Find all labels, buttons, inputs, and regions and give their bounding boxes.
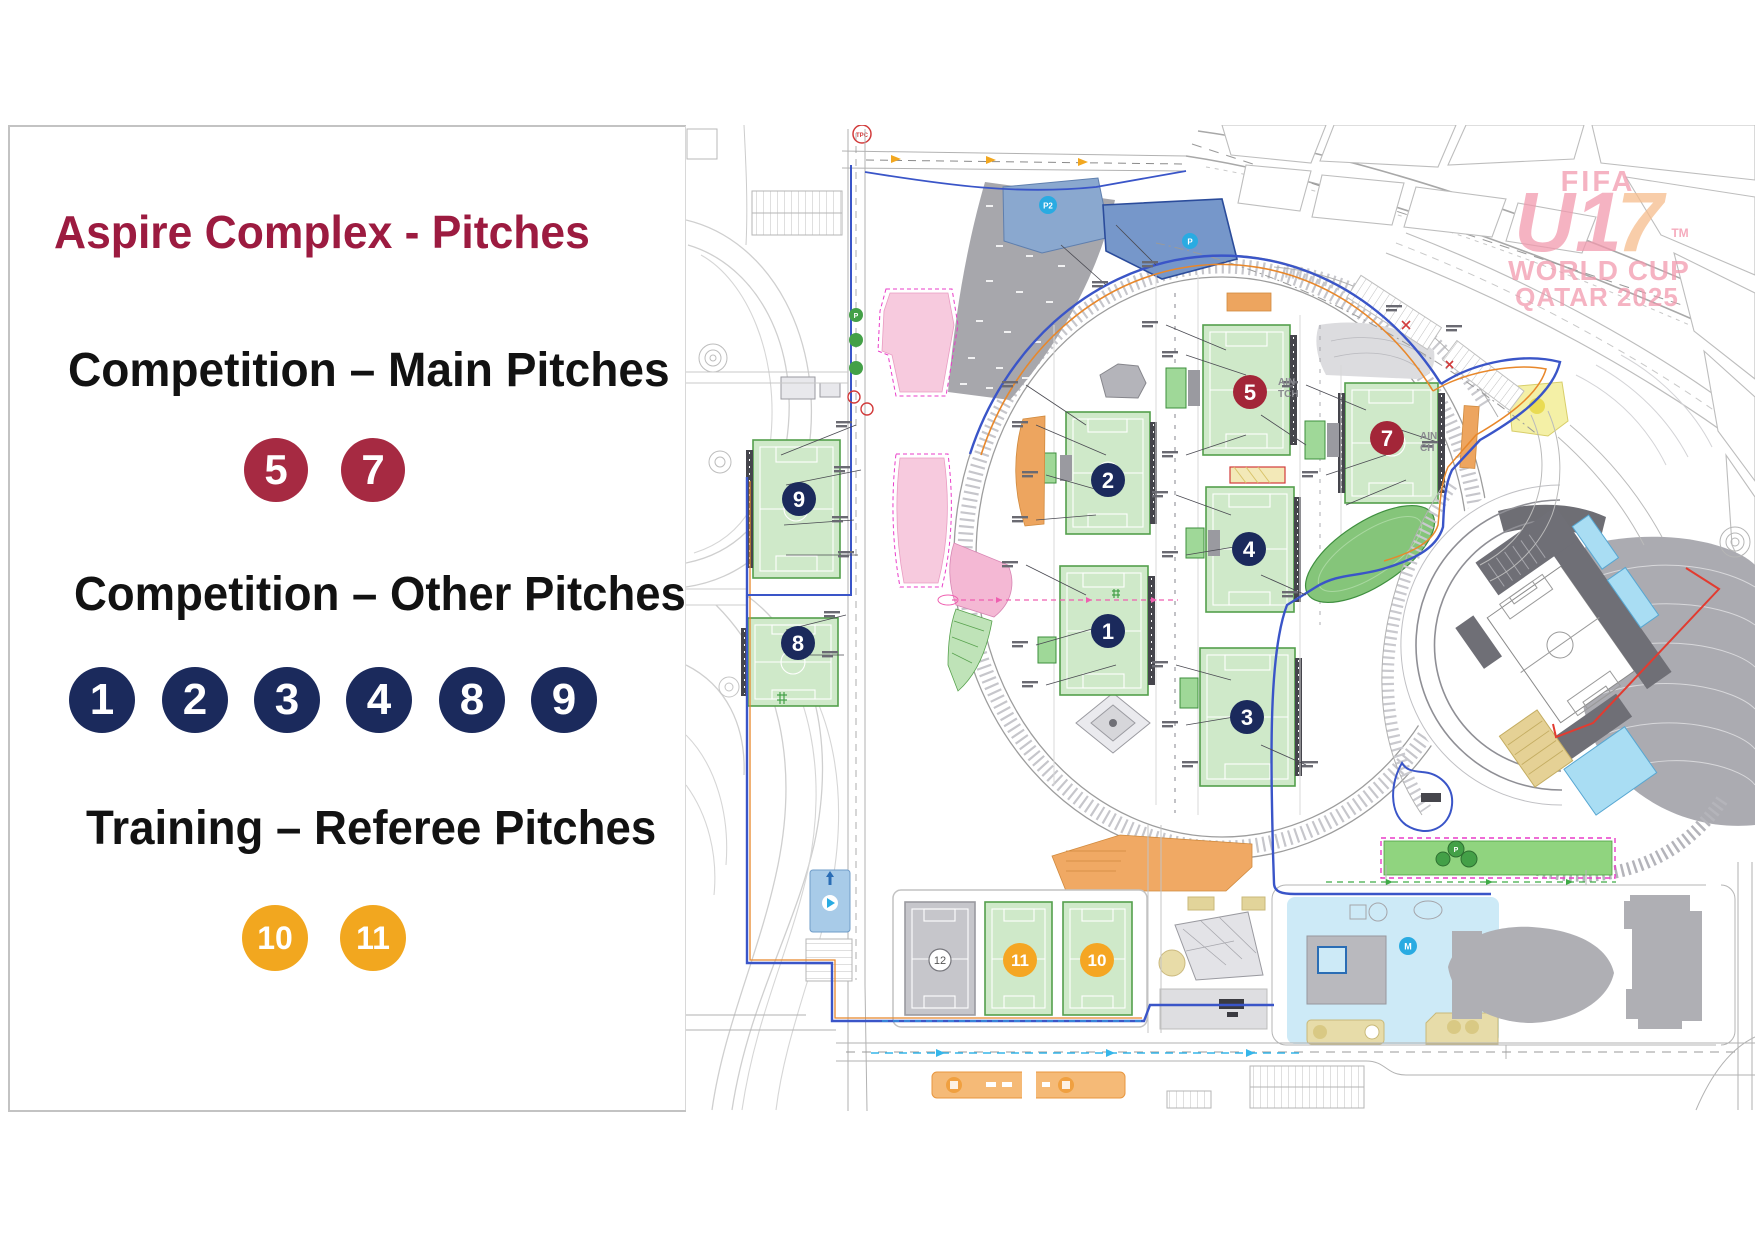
svg-text:2: 2 xyxy=(1102,468,1114,493)
svg-text:8: 8 xyxy=(792,631,804,656)
svg-text:7: 7 xyxy=(1381,426,1393,451)
svg-text:3: 3 xyxy=(1241,705,1253,730)
svg-text:TCH: TCH xyxy=(1278,389,1299,400)
svg-text:TPC: TPC xyxy=(856,133,869,139)
svg-text:AIN: AIN xyxy=(1420,431,1437,442)
svg-text:4: 4 xyxy=(1243,537,1256,562)
svg-text:TM: TM xyxy=(1671,226,1688,240)
svg-text:P2: P2 xyxy=(1043,202,1053,211)
svg-text:CH: CH xyxy=(1420,443,1434,454)
svg-text:QATAR 2025: QATAR 2025 xyxy=(1515,282,1679,312)
svg-text:P: P xyxy=(1454,847,1459,854)
svg-text:12: 12 xyxy=(934,955,946,967)
svg-text:5: 5 xyxy=(1244,380,1256,405)
svg-text:AIN: AIN xyxy=(1278,377,1295,388)
svg-text:1: 1 xyxy=(1102,619,1114,644)
svg-text:P: P xyxy=(1187,238,1193,247)
svg-text:P: P xyxy=(854,313,859,320)
svg-text:9: 9 xyxy=(793,487,805,512)
svg-text:11: 11 xyxy=(1011,951,1029,970)
svg-text:10: 10 xyxy=(1088,951,1107,970)
svg-text:M: M xyxy=(1404,942,1412,952)
